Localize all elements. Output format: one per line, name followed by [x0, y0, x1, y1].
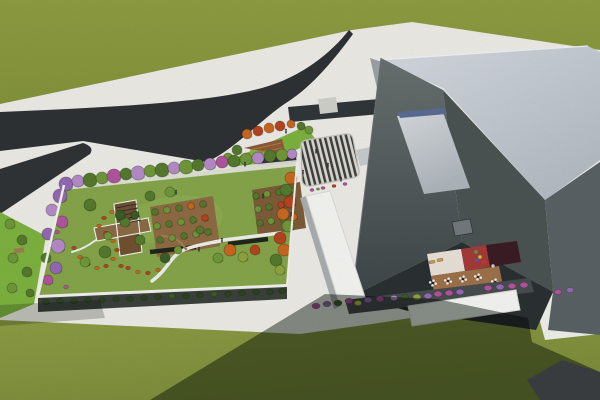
aerial-site-rendering	[0, 0, 600, 400]
render-grain	[0, 0, 600, 400]
architectural-rendering-frame	[0, 0, 600, 400]
